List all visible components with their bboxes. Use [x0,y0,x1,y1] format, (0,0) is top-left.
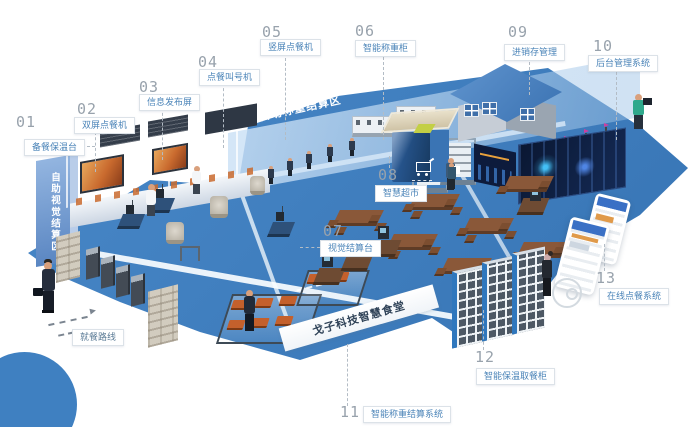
callout-label-04: 点餐叫号机 [199,69,260,86]
pickup-locker [512,246,545,334]
queue-rail [180,246,200,261]
callout-number-02: 02 [77,102,97,117]
leader-07 [300,247,320,248]
route-label: 就餐路线 [72,329,124,346]
callout-number-01: 01 [16,115,36,130]
callout-number-11: 11 [340,405,360,420]
callout-number-12: 12 [475,350,495,365]
leader-13 [604,244,605,271]
leader-11 [347,344,348,406]
dining-table [506,176,550,192]
pickup-locker [482,255,515,341]
callout-label-01: 备餐保温台 [24,139,85,156]
leader-03 [162,108,163,160]
callout-number-04: 04 [198,55,218,70]
callout-number-06: 06 [355,24,375,39]
callout-label-13: 在线点餐系统 [599,288,669,305]
callout-label-09: 进销存管理 [504,44,565,61]
callout-number-09: 09 [508,25,528,40]
callout-number-07: 07 [323,224,343,239]
turnstile-gate [86,246,100,279]
leader-04 [223,83,224,148]
stool [166,222,184,244]
shopping-cart-icon [414,160,434,176]
pickup-locker [452,264,485,348]
stool [250,176,265,195]
leader-09 [529,57,530,95]
smart-canteen-diagram: 自助称重结算区 自助视觉结算区 [0,0,700,427]
turnstile-gate [101,255,115,288]
leader-05 [285,53,286,140]
callout-label-07: 视觉结算台 [320,240,381,257]
callout-label-08: 智慧超市 [375,185,427,202]
callout-number-10: 10 [593,39,613,54]
warehouse-window [464,104,479,117]
callout-label-02: 双屏点餐机 [74,117,135,134]
dining-table [466,218,510,234]
callout-number-03: 03 [139,80,159,95]
route-arrow-dash [48,316,88,326]
leader-10 [616,67,617,140]
leader-12 [483,310,484,350]
visual-checkout-monitor [276,212,284,221]
stool [210,196,228,218]
callout-label-12: 智能保温取餐柜 [476,368,555,385]
callout-label-11: 智能称重结算系统 [363,406,451,423]
callout-label-05: 竖屏点餐机 [260,39,321,56]
leader-06 [383,52,384,140]
checkout-screen [378,226,389,239]
leader-02 [95,132,96,172]
warehouse-window [482,102,497,115]
callout-number-08: 08 [378,168,398,183]
visual-checkout-monitor [126,205,134,214]
callout-number-13: 13 [596,271,616,286]
callout-label-06: 智能称重柜 [355,40,416,57]
callout-label-10: 后台管理系统 [588,55,658,72]
turnstile-gate [131,273,145,306]
entrance-column [56,231,80,283]
corner-floor-arc [0,352,77,427]
visual-checkout-monitor [156,189,164,198]
route-arrow-icon [89,307,96,314]
turnstile-gate [116,264,130,297]
callout-label-03: 信息发布屏 [139,94,200,111]
entrance-column [148,284,178,347]
circle-ring-icon [566,288,578,300]
callout-number-05: 05 [262,25,282,40]
warehouse-window [520,108,535,121]
cart-dash [412,180,432,181]
